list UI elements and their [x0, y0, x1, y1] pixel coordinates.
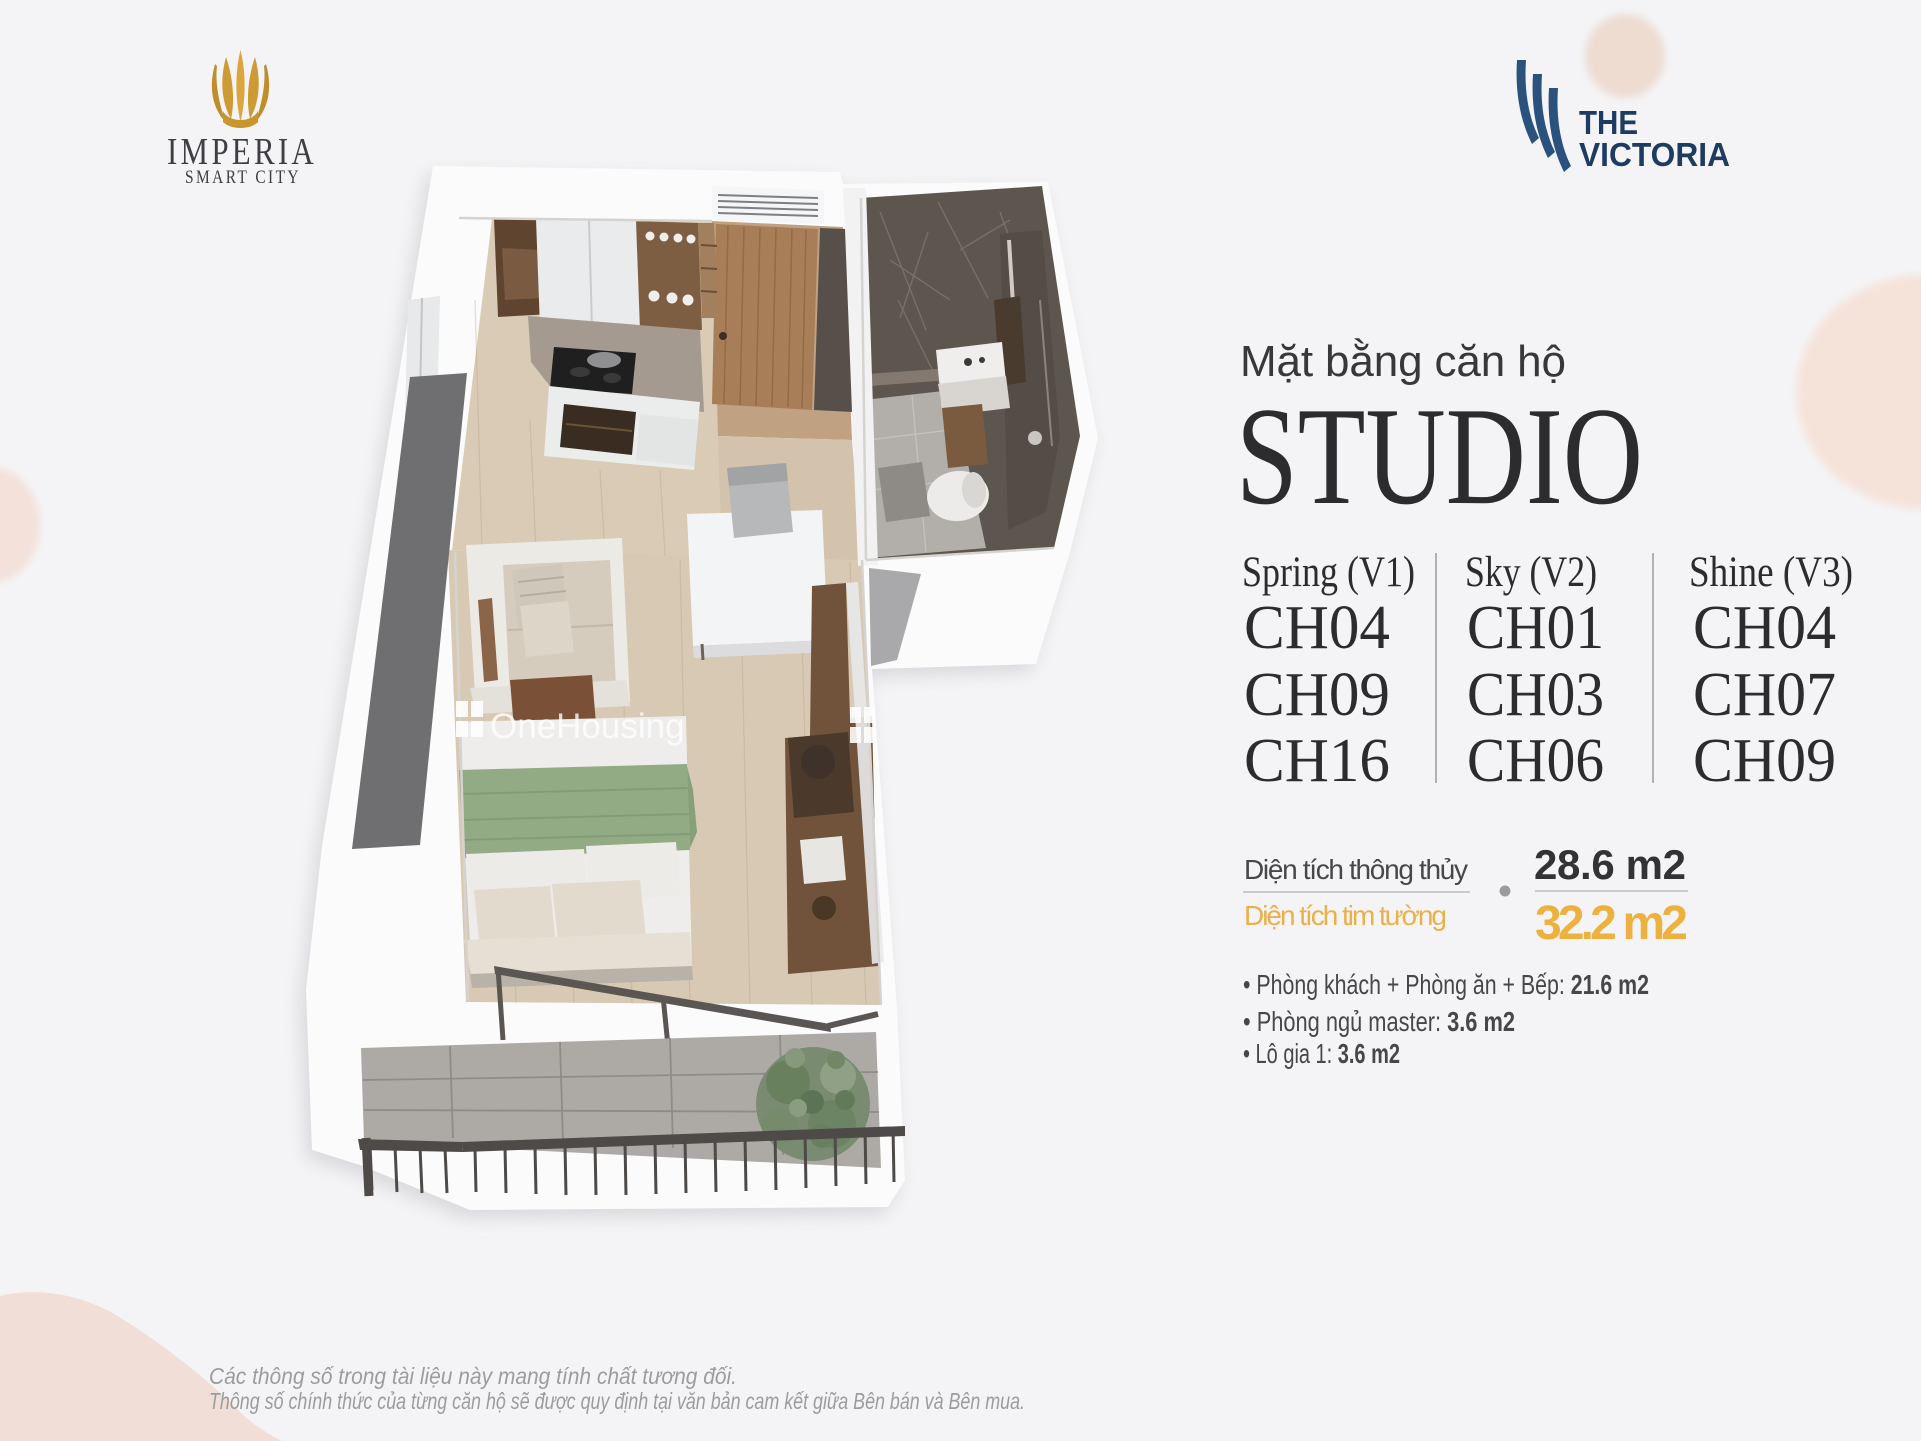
- svg-text:CH04: CH04: [1244, 594, 1390, 662]
- svg-text:STUDIO: STUDIO: [1236, 379, 1643, 534]
- svg-text:• Phòng ngủ master: 3.6 m2: • Phòng ngủ master: 3.6 m2: [1243, 1006, 1515, 1037]
- svg-text:Thông số chính thức của từng c: Thông số chính thức của từng căn hộ sẽ đ…: [209, 1388, 1025, 1414]
- svg-text:28.6 m2: 28.6 m2: [1534, 841, 1686, 888]
- svg-text:CH07: CH07: [1693, 661, 1836, 729]
- svg-text:Shine (V3): Shine (V3): [1689, 549, 1853, 596]
- svg-text:CH04: CH04: [1693, 594, 1836, 662]
- svg-text:32.2 m2: 32.2 m2: [1535, 897, 1688, 950]
- svg-text:CH03: CH03: [1467, 661, 1604, 729]
- svg-text:CH06: CH06: [1467, 727, 1604, 795]
- svg-text:• Phòng khách + Phòng ăn + Bếp: • Phòng khách + Phòng ăn + Bếp: 21.6 m2: [1243, 969, 1649, 1000]
- svg-text:Diện tích thông thủy: Diện tích thông thủy: [1244, 854, 1468, 885]
- svg-text:Spring (V1): Spring (V1): [1242, 549, 1415, 596]
- svg-text:Các thông số trong tài liệu nà: Các thông số trong tài liệu này mang tín…: [209, 1363, 737, 1389]
- svg-text:CH09: CH09: [1693, 727, 1836, 795]
- svg-text:• Lô gia 1: 3.6 m2: • Lô gia 1: 3.6 m2: [1243, 1038, 1400, 1069]
- svg-text:OneHousing: OneHousing: [490, 707, 685, 746]
- svg-text:CH09: CH09: [1244, 661, 1390, 729]
- svg-text:Diện tích tim tường: Diện tích tim tường: [1244, 900, 1447, 931]
- svg-text:VICTORIA: VICTORIA: [1579, 136, 1730, 173]
- svg-text:SMART CITY: SMART CITY: [185, 167, 301, 188]
- svg-text:CH01: CH01: [1467, 594, 1604, 662]
- svg-text:CH16: CH16: [1244, 727, 1390, 795]
- svg-text:Sky (V2): Sky (V2): [1465, 549, 1597, 596]
